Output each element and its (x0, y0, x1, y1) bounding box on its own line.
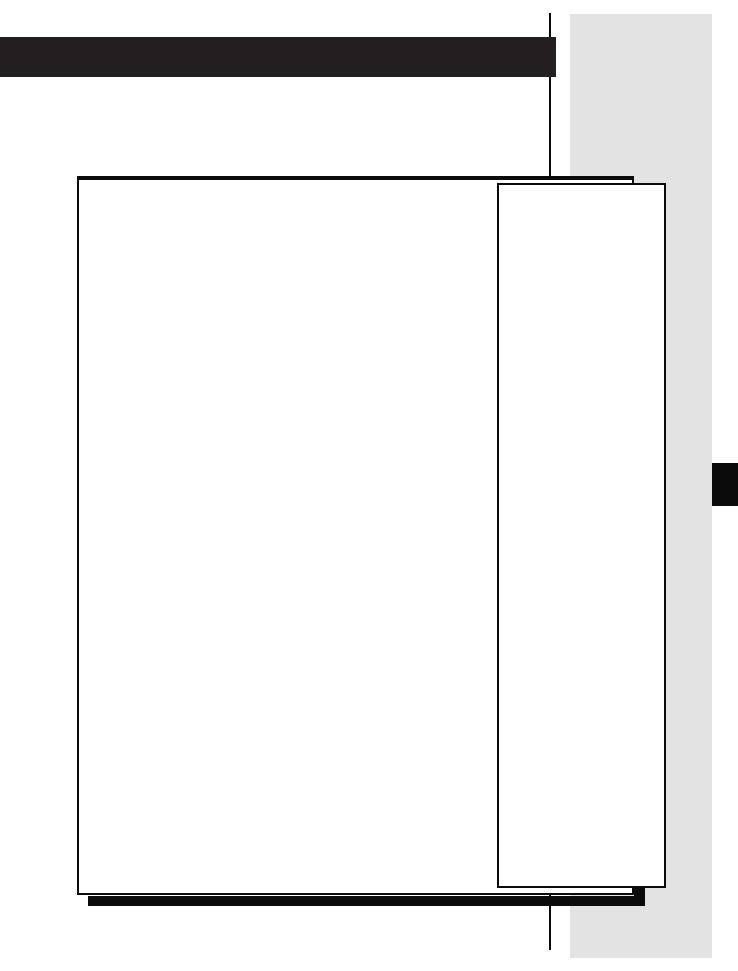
chapter-title-bar (0, 37, 556, 77)
figure-frame-shadow-bottom (88, 896, 645, 906)
sidebar-note-box (497, 183, 666, 888)
chapter-bleed-tab (712, 463, 738, 506)
scanned-document-page (0, 0, 738, 971)
